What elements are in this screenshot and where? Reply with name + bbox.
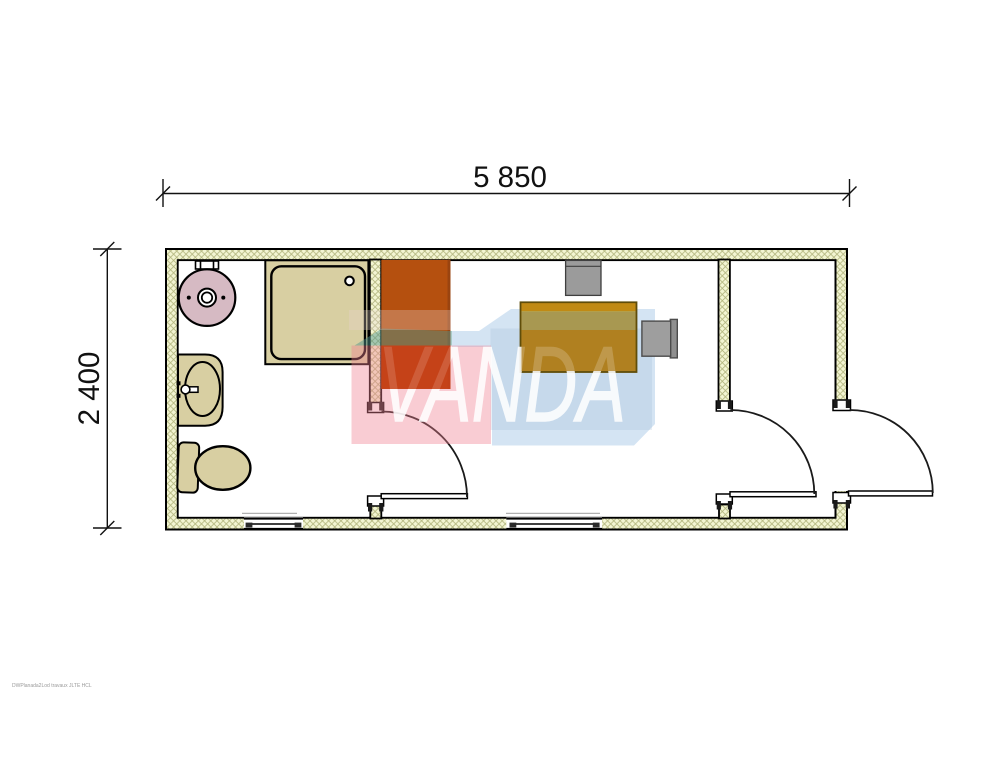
svg-text:2 400: 2 400: [73, 352, 106, 426]
svg-text:5 850: 5 850: [473, 161, 547, 194]
svg-text:DWPlanada2Lod travaux JLTE HCL: DWPlanada2Lod travaux JLTE HCL: [12, 683, 92, 689]
